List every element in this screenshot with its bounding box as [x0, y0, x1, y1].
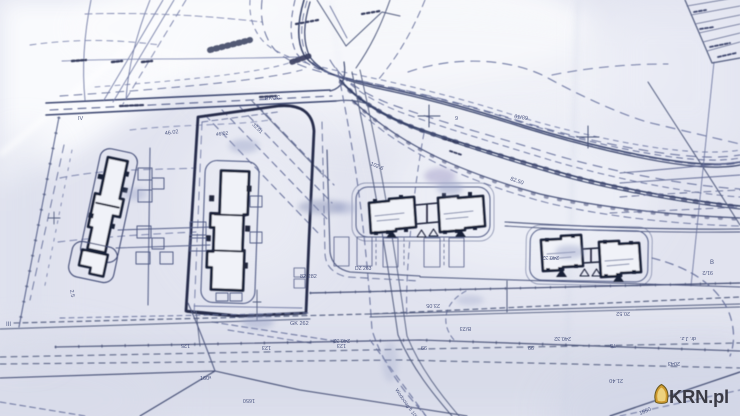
svg-text:75: 75 [610, 342, 616, 348]
svg-text:125: 125 [181, 342, 190, 348]
svg-text:GK 262: GK 262 [290, 321, 309, 327]
svg-text:123: 123 [262, 344, 271, 350]
svg-text:160ª: 160ª [200, 375, 212, 382]
svg-text:20.52: 20.52 [616, 310, 630, 316]
svg-text:PKOC: PKOC [265, 95, 281, 102]
svg-text:B: B [710, 260, 714, 266]
svg-text:III: III [6, 322, 11, 328]
svg-text:99: 99 [528, 344, 534, 350]
svg-text:23.05: 23.05 [426, 302, 440, 308]
svg-text:1650: 1650 [243, 397, 255, 403]
svg-text:DZ 263: DZ 263 [355, 266, 372, 272]
svg-text:82.282: 82.282 [300, 274, 317, 280]
svg-text:99: 99 [421, 344, 427, 350]
svg-text:21.40: 21.40 [609, 377, 623, 383]
svg-text:240.32: 240.32 [554, 335, 571, 341]
svg-text:240.32: 240.32 [333, 337, 350, 343]
svg-text:dr. J.z.: dr. J.z. [679, 335, 696, 341]
svg-text:IV: IV [78, 116, 84, 122]
svg-text:91/2: 91/2 [702, 269, 713, 275]
svg-text:9: 9 [455, 116, 458, 122]
svg-text:2043: 2043 [668, 360, 680, 366]
svg-text:B/23: B/23 [460, 325, 471, 331]
svg-text:240.32: 240.32 [542, 254, 559, 260]
svg-text:KRN.pl: KRN.pl [669, 386, 729, 407]
